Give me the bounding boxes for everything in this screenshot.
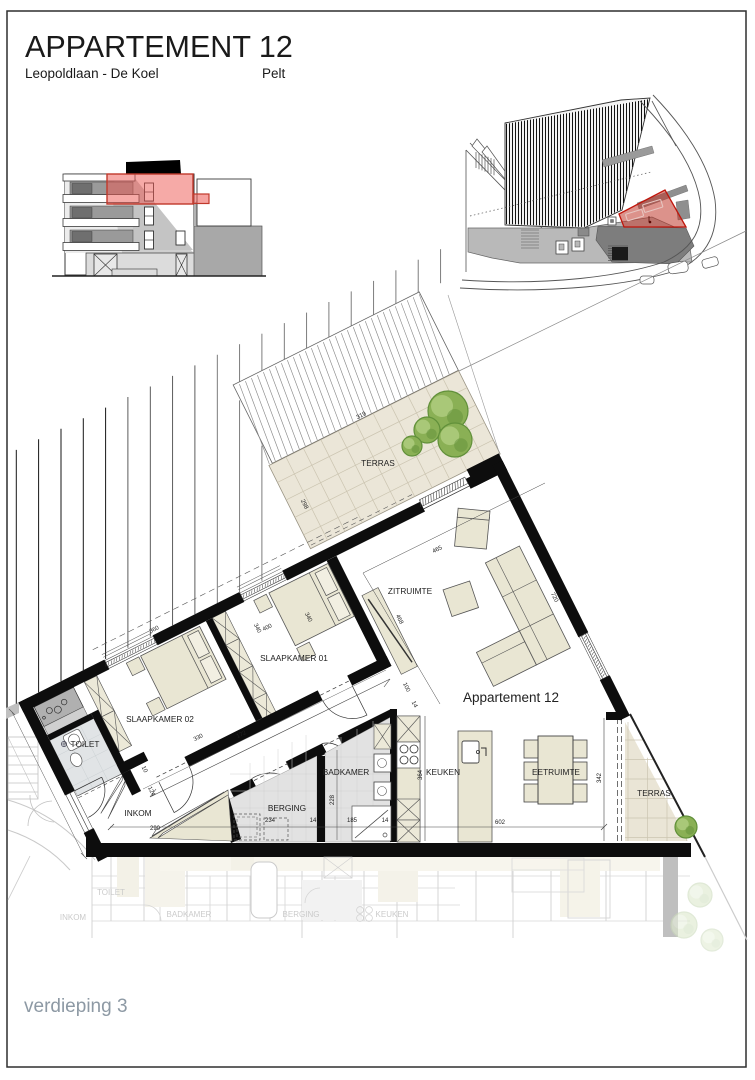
svg-text:KEUKEN: KEUKEN: [426, 767, 460, 777]
svg-text:BADKAMER: BADKAMER: [323, 767, 370, 777]
svg-text:14: 14: [382, 818, 389, 824]
svg-text:TOILET: TOILET: [71, 739, 100, 749]
svg-text:EETRUIMTE: EETRUIMTE: [532, 767, 580, 777]
svg-text:INKOM: INKOM: [124, 808, 151, 818]
svg-text:234: 234: [265, 818, 276, 824]
svg-text:14: 14: [310, 818, 317, 824]
svg-text:BERGING: BERGING: [268, 803, 306, 813]
svg-text:TERRAS: TERRAS: [361, 458, 395, 468]
svg-text:TOILET: TOILET: [97, 888, 125, 897]
svg-text:INKOM: INKOM: [60, 913, 87, 922]
svg-text:228: 228: [330, 794, 336, 805]
svg-text:Leopoldlaan - De Koel: Leopoldlaan - De Koel: [25, 66, 159, 81]
svg-text:Appartement 12: Appartement 12: [463, 690, 559, 705]
svg-text:602: 602: [495, 820, 506, 826]
svg-text:APPARTEMENT 12: APPARTEMENT 12: [25, 30, 293, 64]
svg-text:BADKAMER: BADKAMER: [167, 910, 212, 919]
svg-text:364: 364: [418, 769, 424, 780]
svg-text:BERGING: BERGING: [283, 910, 320, 919]
svg-text:TERRAS: TERRAS: [637, 788, 671, 798]
svg-text:342: 342: [597, 772, 603, 783]
svg-text:ZITRUIMTE: ZITRUIMTE: [388, 586, 433, 596]
svg-text:SLAAPKAMER 01: SLAAPKAMER 01: [260, 653, 328, 663]
svg-text:Pelt: Pelt: [262, 66, 286, 81]
svg-text:KEUKEN: KEUKEN: [376, 910, 409, 919]
svg-text:290: 290: [150, 826, 161, 832]
svg-text:185: 185: [347, 818, 358, 824]
svg-text:verdieping 3: verdieping 3: [24, 996, 128, 1017]
svg-text:SLAAPKAMER 02: SLAAPKAMER 02: [126, 714, 194, 724]
